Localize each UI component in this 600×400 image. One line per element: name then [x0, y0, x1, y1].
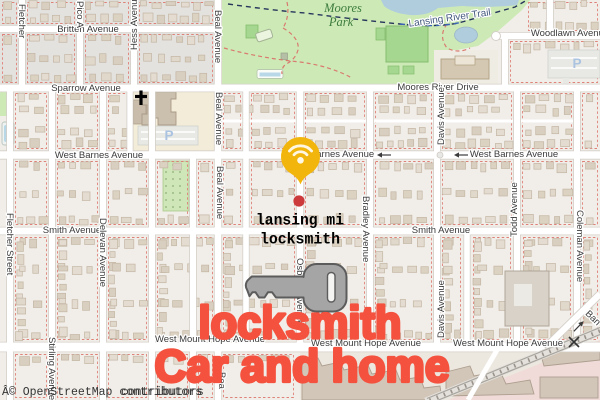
svg-text:Davis Avenue: Davis Avenue [436, 280, 447, 338]
svg-text:Bradley Avenue: Bradley Avenue [360, 196, 371, 262]
svg-text:Sparrow Avenue: Sparrow Avenue [51, 83, 121, 94]
svg-text:Fletcher Street: Fletcher Street [4, 213, 15, 276]
svg-text:Todd Avenue: Todd Avenue [509, 182, 520, 237]
svg-text:Hess Avenue: Hess Avenue [129, 0, 140, 50]
svg-text:contributors: contributors [121, 386, 204, 399]
svg-text:locksmith: locksmith [260, 231, 340, 249]
svg-text:Beal Avenue: Beal Avenue [214, 166, 225, 219]
svg-text:P: P [164, 128, 173, 143]
svg-text:West Barnes Avenue: West Barnes Avenue [470, 149, 558, 160]
svg-text:Beal Avenue: Beal Avenue [212, 10, 223, 63]
svg-text:Pico A: Pico A [74, 1, 85, 29]
svg-text:Smith Avenue: Smith Avenue [43, 225, 101, 236]
svg-text:P: P [572, 56, 581, 71]
svg-text:lansing mi: lansing mi [256, 212, 344, 230]
svg-text:Park: Park [328, 15, 354, 29]
svg-text:West Barnes Avenue: West Barnes Avenue [55, 150, 143, 161]
svg-text:Woodlawn Avenue: Woodlawn Avenue [531, 28, 600, 39]
svg-text:Moores: Moores [323, 1, 362, 15]
svg-text:Britten Avenue: Britten Avenue [57, 24, 119, 35]
svg-text:West Mount Hope Avenue: West Mount Hope Avenue [453, 338, 563, 349]
svg-text:Davis Avenue: Davis Avenue [436, 87, 447, 145]
svg-text:Delevan Avenue: Delevan Avenue [97, 218, 108, 287]
svg-text:Car and home: Car and home [155, 341, 450, 392]
svg-text:Fletcher: Fletcher [16, 4, 27, 38]
svg-text:Coleman Avenue: Coleman Avenue [574, 210, 585, 282]
svg-text:Smith Avenue: Smith Avenue [412, 225, 470, 236]
svg-text:Beal Avenue: Beal Avenue [213, 92, 224, 145]
